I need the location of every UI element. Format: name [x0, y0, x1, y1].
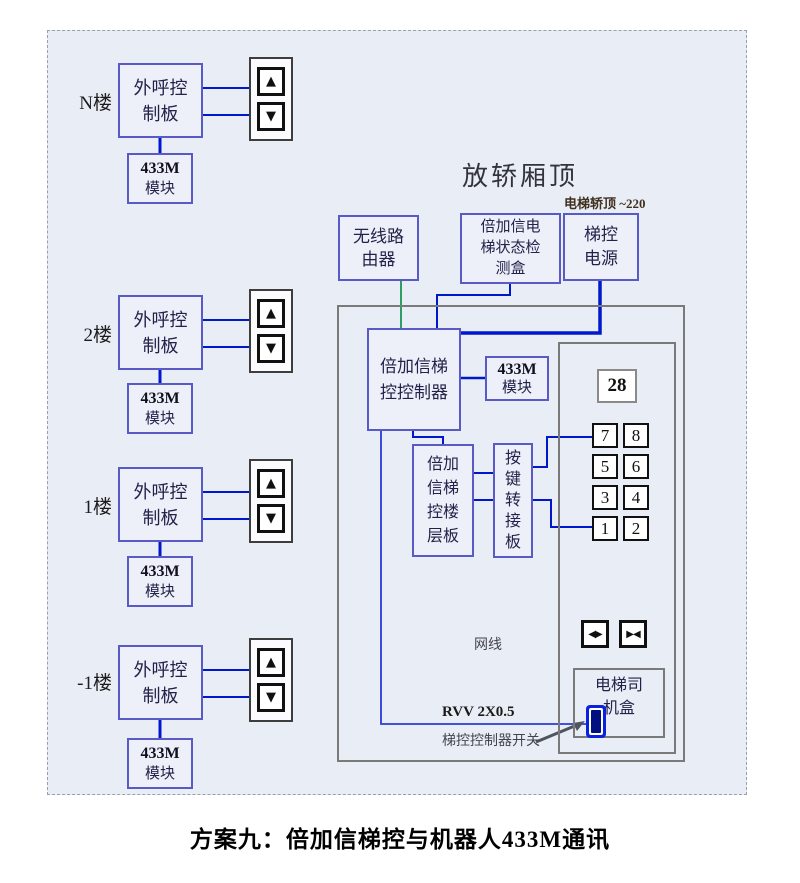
controller-433m-module-box: 433M 模块	[485, 356, 549, 401]
module-433m-n: 433M 模块	[127, 153, 193, 204]
floor-button-4: 4	[623, 485, 649, 510]
call-board-minus1: 外呼控 制板	[118, 645, 203, 720]
module-433m-minus1: 433M 模块	[127, 738, 193, 789]
power-note-label: 电梯轿顶 ~220	[564, 193, 646, 212]
floor-button-5: 5	[592, 454, 618, 479]
module-433m-2: 433M 模块	[127, 383, 193, 434]
controller-switch-ring	[589, 708, 603, 735]
down-button-icon: ▼	[257, 504, 285, 533]
up-button-icon: ▲	[257, 67, 285, 96]
cartop-title: 放轿厢顶	[420, 156, 620, 193]
network-cable-label: 网线	[474, 634, 502, 654]
floor-button-7: 7	[592, 423, 618, 448]
key-adapter-board-box: 按 键 转 接 板	[493, 443, 533, 558]
up-button-icon: ▲	[257, 299, 285, 328]
floor-button-3: 3	[592, 485, 618, 510]
elevator-control-power-box: 梯控 电源	[563, 213, 639, 281]
down-button-icon: ▼	[257, 334, 285, 363]
up-button-icon: ▲	[257, 469, 285, 498]
floor-display: 28	[597, 369, 637, 403]
floor-label-minus1: -1楼	[34, 668, 112, 695]
floor-button-6: 6	[623, 454, 649, 479]
floor-button-8: 8	[623, 423, 649, 448]
call-board-1: 外呼控 制板	[118, 467, 203, 542]
floor-button-2: 2	[623, 516, 649, 541]
door-open-button-icon: ◀▶	[581, 620, 609, 648]
floor-keypad: 7 8 5 6 3 4 1 2	[592, 423, 649, 541]
controller-switch-core	[591, 710, 601, 733]
controller-switch-label: 梯控控制器开关	[442, 730, 540, 750]
schematic-page: N楼 外呼控 制板 ▲ ▼ 433M 模块 2楼 外呼控 制板 ▲ ▼ 433M…	[0, 0, 800, 883]
down-button-icon: ▼	[257, 102, 285, 131]
wireless-router-box: 无线路 由器	[338, 215, 419, 281]
elevator-status-detector-box: 倍加信电 梯状态检 测盒	[460, 213, 561, 284]
up-button-icon: ▲	[257, 648, 285, 677]
floor-label-n: N楼	[34, 88, 112, 115]
controller-switch	[586, 705, 606, 738]
module-433m-1: 433M 模块	[127, 556, 193, 607]
call-button-panel-1: ▲ ▼	[249, 459, 293, 543]
door-close-button-icon: ▶◀	[619, 620, 647, 648]
floor-button-1: 1	[592, 516, 618, 541]
call-board-2: 外呼控 制板	[118, 295, 203, 370]
floor-board-box: 倍加 信梯 控楼 层板	[412, 444, 474, 557]
call-button-panel-minus1: ▲ ▼	[249, 638, 293, 722]
down-button-icon: ▼	[257, 683, 285, 712]
rvv-cable-label: RVV 2X0.5	[442, 704, 515, 721]
call-board-n: 外呼控 制板	[118, 63, 203, 138]
elevator-controller-box: 倍加信梯 控控制器	[367, 328, 461, 431]
call-button-panel-2: ▲ ▼	[249, 289, 293, 373]
diagram-caption: 方案九：倍加信梯控与机器人433M通讯	[0, 820, 800, 854]
call-button-panel-n: ▲ ▼	[249, 57, 293, 141]
floor-label-1: 1楼	[34, 492, 112, 519]
floor-label-2: 2楼	[34, 320, 112, 347]
